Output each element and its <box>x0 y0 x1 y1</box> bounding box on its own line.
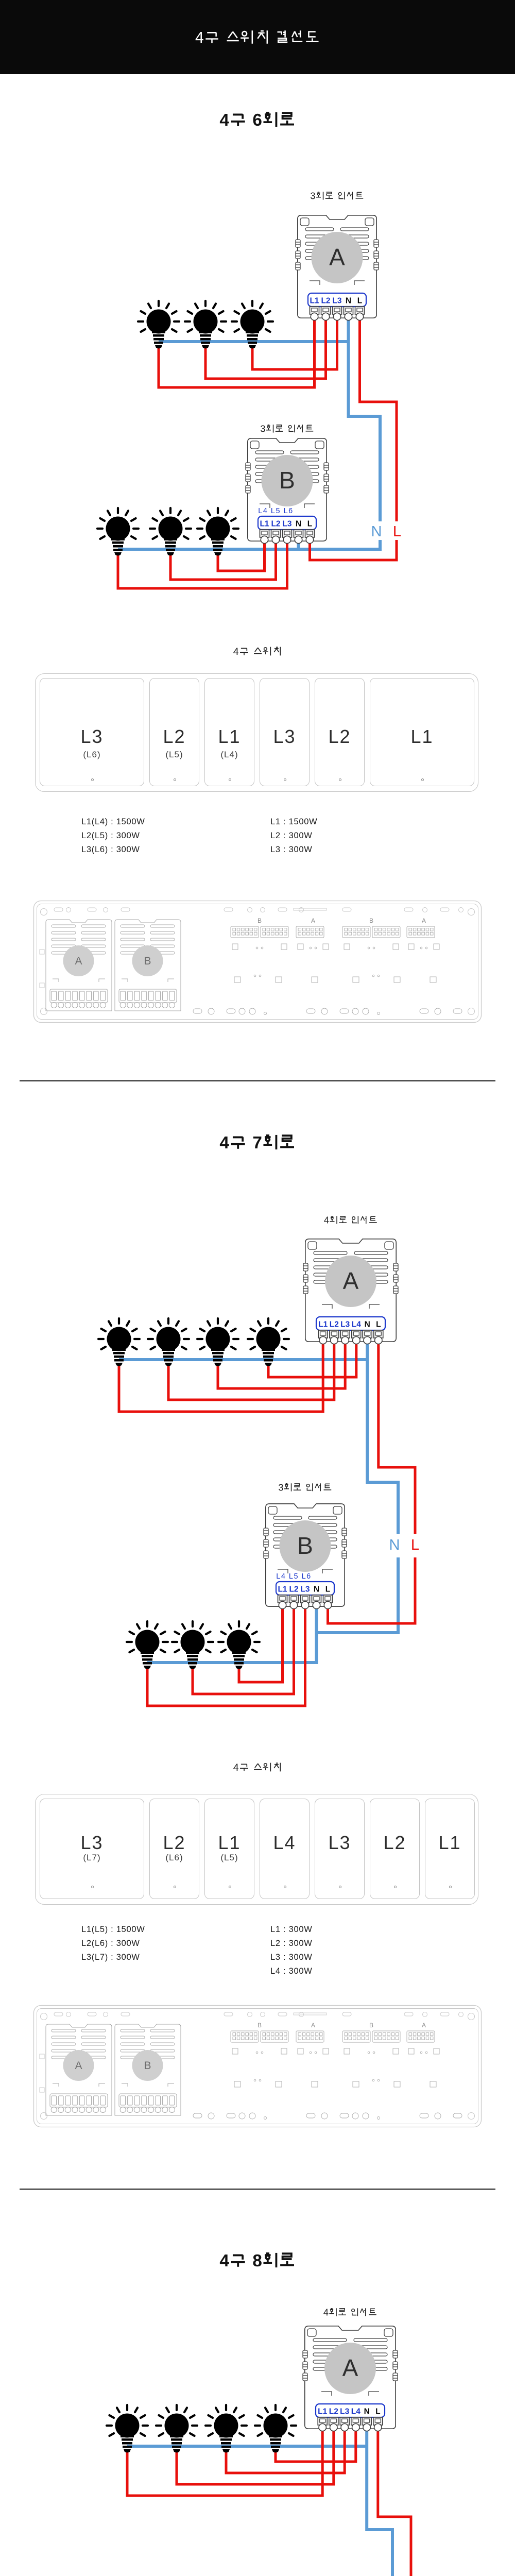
svg-text:4: 4 <box>233 646 239 657</box>
svg-text:A: A <box>329 244 345 270</box>
svg-text:4: 4 <box>233 1762 239 1773</box>
svg-text:L2: L2 <box>329 2408 338 2416</box>
svg-text:4: 4 <box>219 2251 229 2270</box>
svg-text:4: 4 <box>195 29 204 46</box>
svg-text:L2: L2 <box>271 520 280 529</box>
svg-text:L1: L1 <box>260 520 269 529</box>
svg-text:L3: L3 <box>340 1320 350 1329</box>
svg-text:4: 4 <box>219 111 229 130</box>
svg-text:N: N <box>314 1585 319 1594</box>
svg-text:A: A <box>311 917 315 924</box>
svg-text:B: B <box>257 2022 262 2029</box>
svg-text:A: A <box>343 1267 359 1294</box>
svg-text:L4 L5 L6: L4 L5 L6 <box>258 507 293 515</box>
svg-text:N: N <box>346 297 351 306</box>
svg-text:L2: L2 <box>321 297 330 306</box>
svg-text:8: 8 <box>252 2251 262 2270</box>
svg-text:4: 4 <box>323 2308 329 2318</box>
svg-text:L3: L3 <box>332 297 341 306</box>
svg-text:L2: L2 <box>330 1320 339 1329</box>
svg-text:A: A <box>75 2060 82 2072</box>
svg-text:N: N <box>296 520 301 529</box>
svg-text:L1: L1 <box>310 297 319 306</box>
svg-text:A: A <box>342 2354 358 2381</box>
svg-text:4: 4 <box>324 1215 329 1226</box>
svg-text:L: L <box>357 297 362 306</box>
svg-text:L: L <box>376 1320 381 1329</box>
svg-text:L: L <box>325 1585 330 1594</box>
svg-text:L1: L1 <box>278 1585 287 1594</box>
svg-text:L3: L3 <box>340 2408 349 2416</box>
svg-text:L: L <box>375 2408 380 2416</box>
svg-text:L2: L2 <box>289 1585 298 1594</box>
svg-text:N: N <box>364 2408 370 2416</box>
svg-text:N: N <box>389 1537 400 1553</box>
svg-text:L: L <box>307 520 312 529</box>
svg-text:L: L <box>411 1537 419 1553</box>
svg-text:L4 L5 L6: L4 L5 L6 <box>276 1572 311 1581</box>
svg-text:A: A <box>75 955 82 967</box>
svg-text:B: B <box>297 1532 313 1559</box>
svg-text:N: N <box>365 1320 370 1329</box>
svg-text:B: B <box>144 955 151 967</box>
svg-text:A: A <box>311 2022 315 2029</box>
svg-text:B: B <box>369 917 373 924</box>
svg-text:L3: L3 <box>282 520 291 529</box>
svg-text:A: A <box>422 917 426 924</box>
svg-text:3: 3 <box>260 424 265 434</box>
svg-text:B: B <box>257 917 262 924</box>
svg-text:L3: L3 <box>300 1585 310 1594</box>
svg-text:L1: L1 <box>318 1320 328 1329</box>
svg-text:A: A <box>422 2022 426 2029</box>
svg-text:4: 4 <box>219 1133 229 1153</box>
svg-text:L: L <box>393 523 401 540</box>
svg-text:7: 7 <box>252 1133 262 1153</box>
svg-text:L4: L4 <box>351 2408 360 2416</box>
svg-text:3: 3 <box>278 1483 283 1493</box>
svg-text:3: 3 <box>310 191 315 201</box>
svg-text:N: N <box>371 523 382 540</box>
svg-text:B: B <box>279 467 295 494</box>
svg-text:B: B <box>369 2022 373 2029</box>
svg-text:B: B <box>144 2060 151 2072</box>
svg-text:L4: L4 <box>352 1320 361 1329</box>
svg-text:6: 6 <box>252 111 262 130</box>
svg-text:L1: L1 <box>318 2408 327 2416</box>
